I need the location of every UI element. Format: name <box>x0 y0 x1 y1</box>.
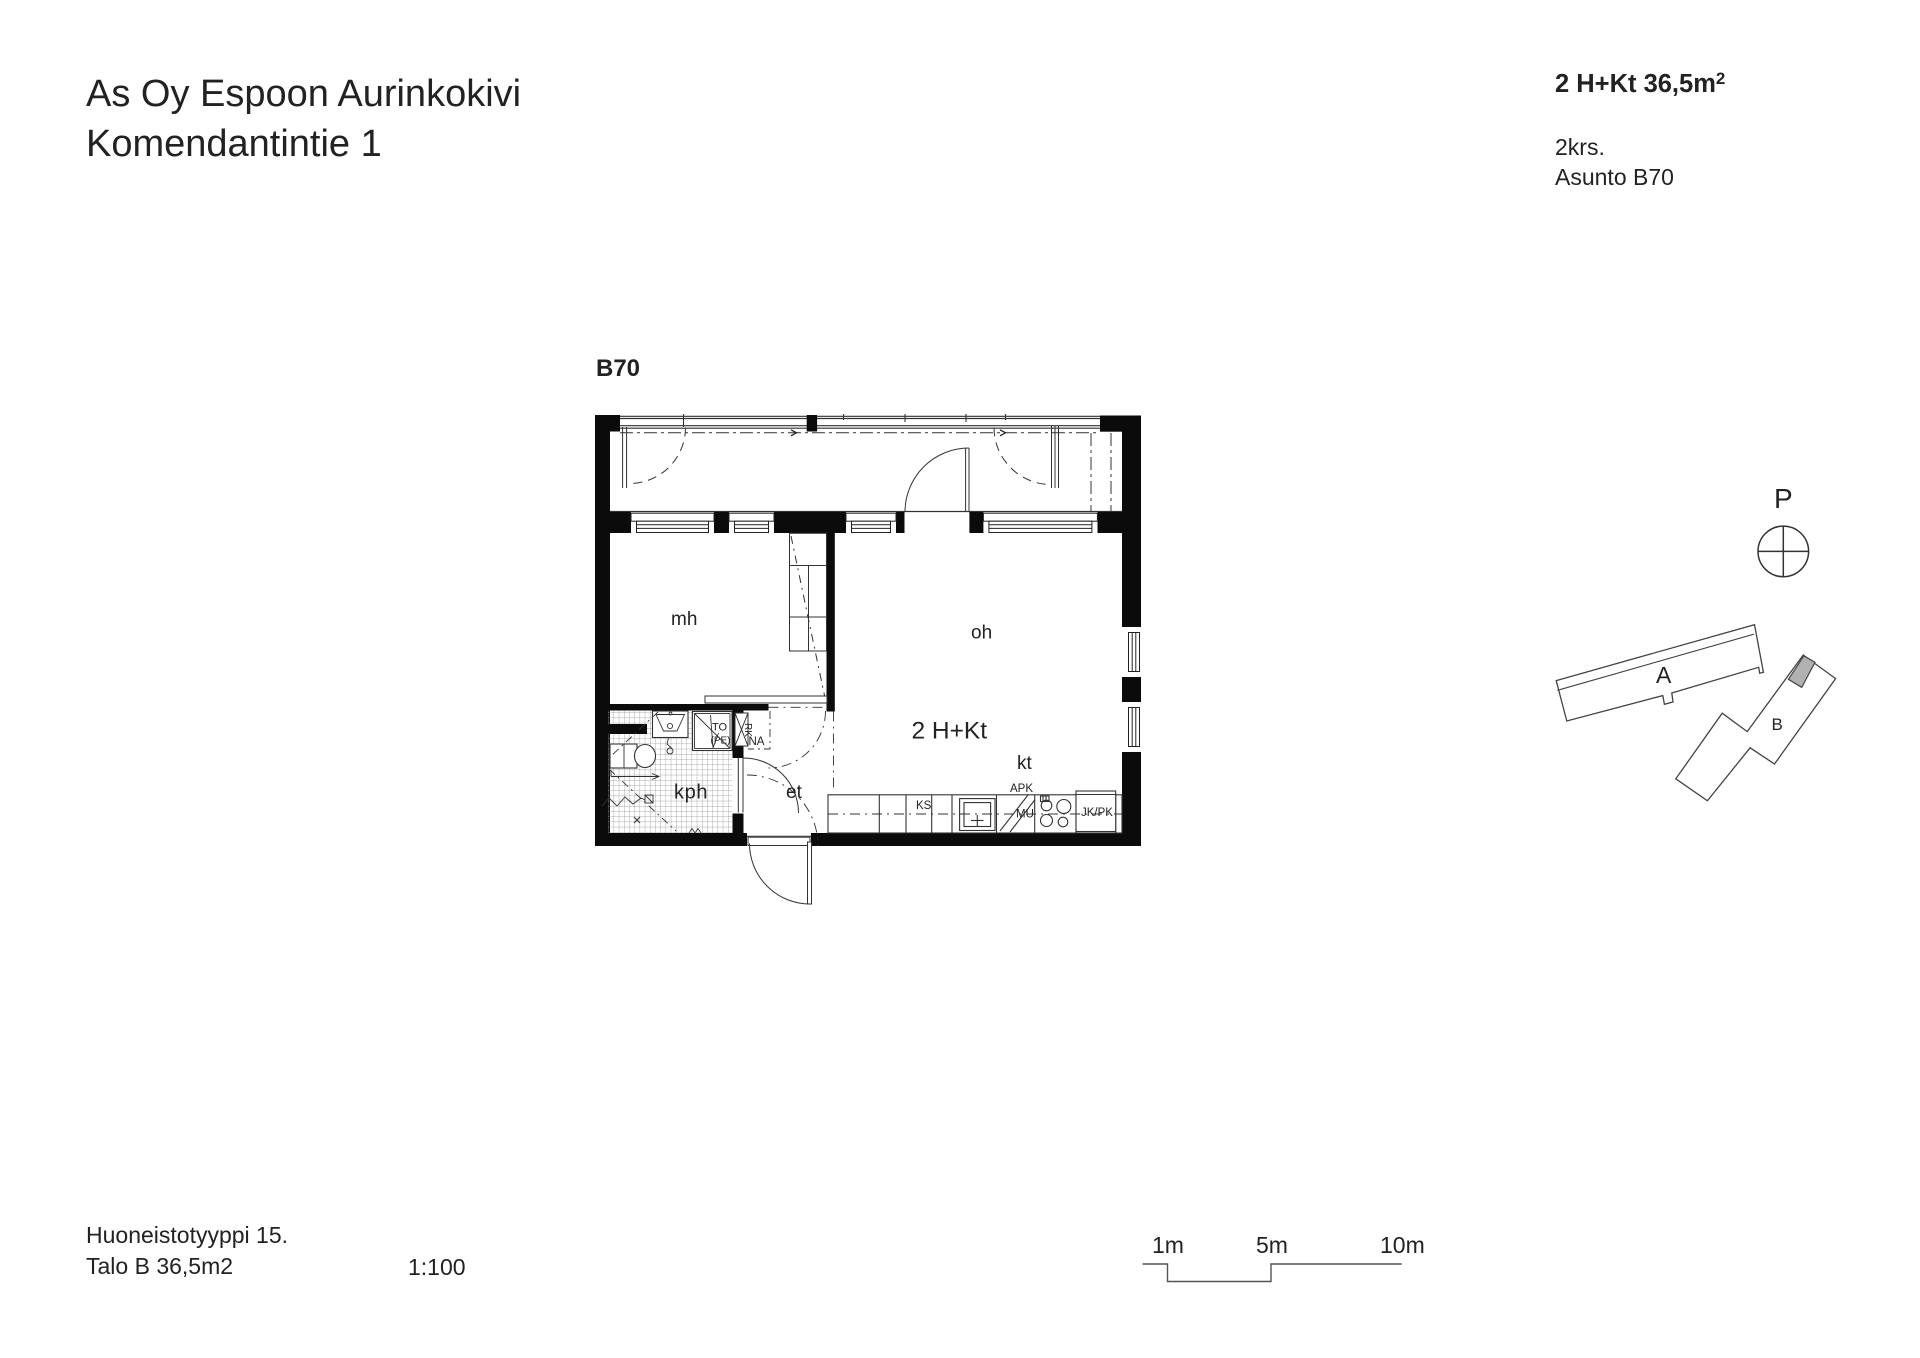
svg-text:5m: 5m <box>1256 1232 1288 1258</box>
svg-text:1m: 1m <box>1152 1232 1184 1258</box>
svg-text:Huoneistotyyppi 15.: Huoneistotyyppi 15. <box>86 1222 288 1248</box>
svg-text:APK: APK <box>1010 783 1033 795</box>
svg-text:2 H+Kt: 2 H+Kt <box>912 718 988 745</box>
svg-text:et: et <box>786 782 803 803</box>
svg-text:kph: kph <box>674 782 708 804</box>
svg-text:2krs.: 2krs. <box>1555 134 1605 160</box>
svg-text:P: P <box>1774 483 1793 514</box>
svg-text:oh: oh <box>971 623 992 644</box>
svg-text:(PE): (PE) <box>711 735 731 746</box>
svg-text:kt: kt <box>1017 753 1033 774</box>
svg-text:Asunto B70: Asunto B70 <box>1555 164 1674 190</box>
svg-text:NA: NA <box>749 736 765 748</box>
svg-text:B: B <box>1772 715 1783 734</box>
svg-text:RK: RK <box>742 723 753 737</box>
svg-text:10m: 10m <box>1380 1232 1425 1258</box>
svg-text:Komendantintie 1: Komendantintie 1 <box>86 123 382 165</box>
svg-text:KS: KS <box>916 800 932 812</box>
svg-text:As Oy Espoon Aurinkokivi: As Oy Espoon Aurinkokivi <box>86 73 521 115</box>
svg-text:1:100: 1:100 <box>408 1254 466 1280</box>
svg-text:A: A <box>1656 662 1672 688</box>
svg-text:mh: mh <box>671 609 697 630</box>
svg-text:MU: MU <box>1016 809 1034 821</box>
svg-text:B70: B70 <box>596 355 640 382</box>
svg-text:JK/PK: JK/PK <box>1081 807 1113 819</box>
svg-text:2 H+Kt 36,5m2: 2 H+Kt 36,5m2 <box>1555 69 1725 98</box>
svg-text:TO: TO <box>712 722 728 734</box>
svg-text:Talo B 36,5m2: Talo B 36,5m2 <box>86 1253 233 1279</box>
